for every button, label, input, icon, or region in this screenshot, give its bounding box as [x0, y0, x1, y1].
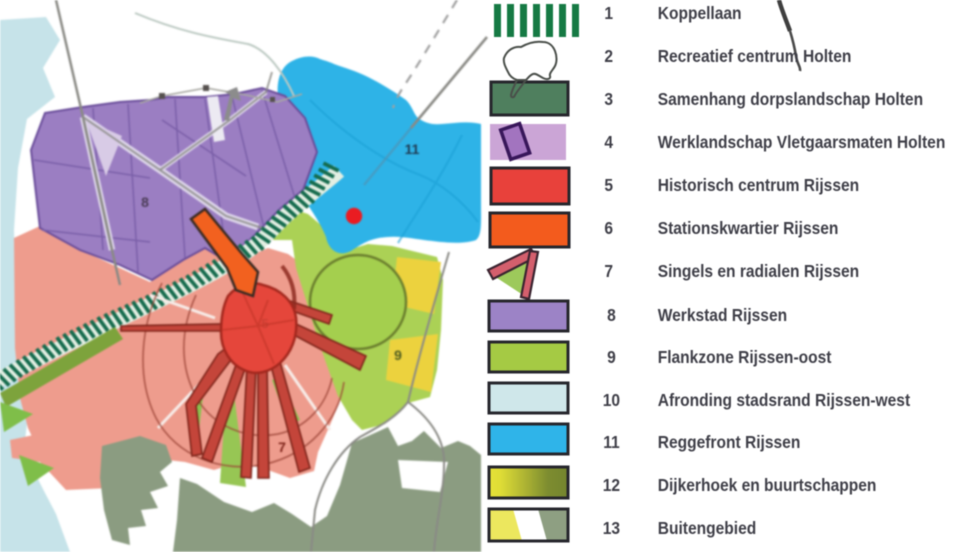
svg-text:12: 12 — [603, 475, 620, 495]
svg-text:9: 9 — [394, 347, 402, 363]
svg-text:10: 10 — [603, 390, 620, 410]
svg-text:Werkstad Rijssen: Werkstad Rijssen — [658, 305, 787, 325]
svg-text:Dijkerhoek en buurtschappen: Dijkerhoek en buurtschappen — [658, 475, 877, 495]
svg-text:1: 1 — [604, 3, 613, 23]
svg-text:Stationskwartier Rijssen: Stationskwartier Rijssen — [658, 218, 839, 238]
svg-text:5: 5 — [604, 175, 613, 195]
svg-text:8: 8 — [607, 305, 616, 325]
svg-text:8: 8 — [141, 194, 149, 210]
svg-text:7: 7 — [278, 439, 286, 455]
svg-text:Recreatief centrum Holten: Recreatief centrum Holten — [658, 46, 852, 66]
svg-text:13: 13 — [603, 518, 620, 538]
svg-text:Buitengebied: Buitengebied — [658, 518, 757, 538]
svg-text:7: 7 — [604, 261, 613, 281]
svg-text:Samenhang dorpslandschap Holte: Samenhang dorpslandschap Holten — [658, 89, 923, 109]
svg-text:Singels en radialen Rijssen: Singels en radialen Rijssen — [658, 261, 859, 281]
svg-text:2: 2 — [604, 46, 613, 66]
svg-text:Afronding stadsrand Rijssen-we: Afronding stadsrand Rijssen-west — [658, 390, 911, 410]
svg-text:4: 4 — [604, 132, 613, 152]
svg-text:3: 3 — [604, 89, 613, 109]
svg-text:6: 6 — [604, 218, 613, 238]
svg-text:Koppellaan: Koppellaan — [658, 3, 742, 23]
svg-text:Reggefront Rijssen: Reggefront Rijssen — [658, 432, 801, 452]
svg-text:11: 11 — [405, 141, 420, 157]
svg-text:9: 9 — [607, 347, 616, 367]
svg-text:Werklandschap Vletgaarsmaten H: Werklandschap Vletgaarsmaten Holten — [658, 132, 946, 152]
svg-text:11: 11 — [603, 432, 619, 452]
svg-text:Flankzone Rijssen-oost: Flankzone Rijssen-oost — [658, 347, 832, 367]
svg-text:5: 5 — [261, 316, 268, 331]
svg-text:Historisch centrum Rijssen: Historisch centrum Rijssen — [658, 175, 859, 195]
